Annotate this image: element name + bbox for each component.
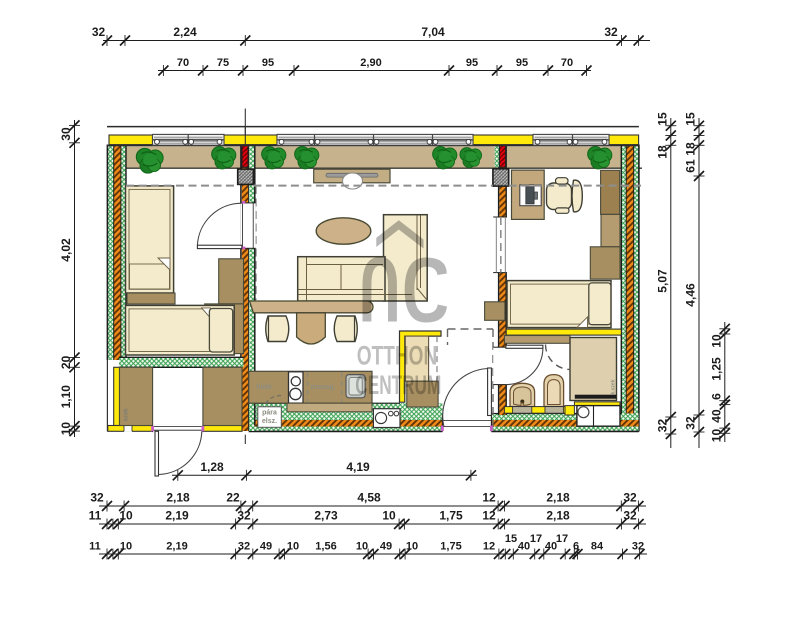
svg-text:32: 32 — [237, 509, 251, 523]
svg-text:32: 32 — [655, 419, 669, 433]
svg-text:10: 10 — [406, 541, 418, 553]
svg-text:mosog.: mosog. — [311, 384, 336, 391]
svg-text:4,02: 4,02 — [59, 238, 73, 262]
svg-text:10: 10 — [119, 509, 133, 523]
svg-text:12: 12 — [483, 541, 495, 553]
svg-text:1,10: 1,10 — [59, 385, 73, 409]
svg-text:15: 15 — [505, 533, 517, 545]
svg-text:70: 70 — [561, 57, 573, 69]
svg-text:75: 75 — [217, 57, 229, 69]
svg-text:17: 17 — [530, 533, 542, 545]
svg-text:15: 15 — [684, 112, 698, 126]
svg-text:4,58: 4,58 — [357, 491, 381, 505]
svg-text:40: 40 — [518, 541, 530, 553]
svg-text:CENTRUM: CENTRUM — [355, 370, 441, 400]
svg-text:49: 49 — [260, 541, 272, 553]
svg-text:32: 32 — [92, 25, 106, 39]
svg-text:32: 32 — [632, 541, 644, 553]
svg-text:12: 12 — [482, 491, 496, 505]
svg-text:7,04: 7,04 — [421, 25, 445, 39]
svg-text:61: 61 — [684, 159, 698, 173]
svg-text:11: 11 — [89, 541, 101, 553]
svg-text:95: 95 — [516, 57, 528, 69]
svg-text:1,56: 1,56 — [315, 541, 336, 553]
svg-text:OTTHON: OTTHON — [357, 341, 438, 371]
svg-text:1,28: 1,28 — [200, 460, 224, 474]
svg-text:2,19: 2,19 — [166, 541, 187, 553]
svg-text:49: 49 — [380, 541, 392, 553]
svg-text:12: 12 — [482, 509, 496, 523]
svg-text:40: 40 — [709, 409, 723, 423]
svg-text:70: 70 — [177, 57, 189, 69]
svg-text:2,90: 2,90 — [360, 57, 381, 69]
svg-text:84: 84 — [591, 541, 604, 553]
svg-text:5,07: 5,07 — [655, 269, 669, 293]
svg-text:10: 10 — [120, 541, 132, 553]
svg-text:11: 11 — [89, 509, 102, 523]
svg-text:18: 18 — [684, 142, 698, 156]
svg-text:10: 10 — [382, 509, 396, 523]
svg-text:20: 20 — [59, 355, 73, 369]
svg-text:hűtő: hűtő — [256, 384, 271, 391]
svg-text:k.szek: k.szek — [611, 379, 617, 394]
svg-text:32: 32 — [238, 541, 250, 553]
svg-text:elsz.: elsz. — [262, 418, 277, 425]
svg-text:17: 17 — [556, 533, 568, 545]
svg-text:15: 15 — [655, 112, 669, 126]
svg-text:10: 10 — [59, 422, 73, 436]
svg-text:1,75: 1,75 — [440, 541, 461, 553]
svg-text:32: 32 — [604, 25, 618, 39]
svg-text:2,24: 2,24 — [173, 25, 197, 39]
svg-text:1,25: 1,25 — [709, 357, 723, 381]
svg-text:18: 18 — [655, 145, 669, 159]
svg-text:6: 6 — [709, 393, 723, 400]
svg-text:10: 10 — [356, 541, 368, 553]
svg-text:szek: szek — [124, 408, 130, 422]
svg-text:95: 95 — [466, 57, 478, 69]
svg-text:6: 6 — [573, 541, 579, 553]
svg-text:2,18: 2,18 — [546, 509, 570, 523]
svg-text:10: 10 — [287, 541, 299, 553]
svg-text:2,18: 2,18 — [166, 491, 190, 505]
svg-text:95: 95 — [262, 57, 274, 69]
svg-text:30: 30 — [59, 127, 73, 141]
svg-text:2,19: 2,19 — [165, 509, 189, 523]
svg-text:1,75: 1,75 — [439, 509, 463, 523]
svg-text:10: 10 — [709, 429, 723, 443]
svg-text:10: 10 — [709, 334, 723, 348]
svg-text:32: 32 — [684, 416, 698, 430]
svg-text:2,18: 2,18 — [546, 491, 570, 505]
svg-text:22: 22 — [226, 491, 240, 505]
svg-text:32: 32 — [623, 509, 637, 523]
svg-text:2,73: 2,73 — [314, 509, 338, 523]
svg-text:4,19: 4,19 — [346, 460, 370, 474]
svg-text:pára: pára — [262, 410, 277, 417]
svg-text:32: 32 — [623, 491, 637, 505]
svg-text:32: 32 — [90, 491, 104, 505]
svg-text:4,46: 4,46 — [684, 283, 698, 307]
